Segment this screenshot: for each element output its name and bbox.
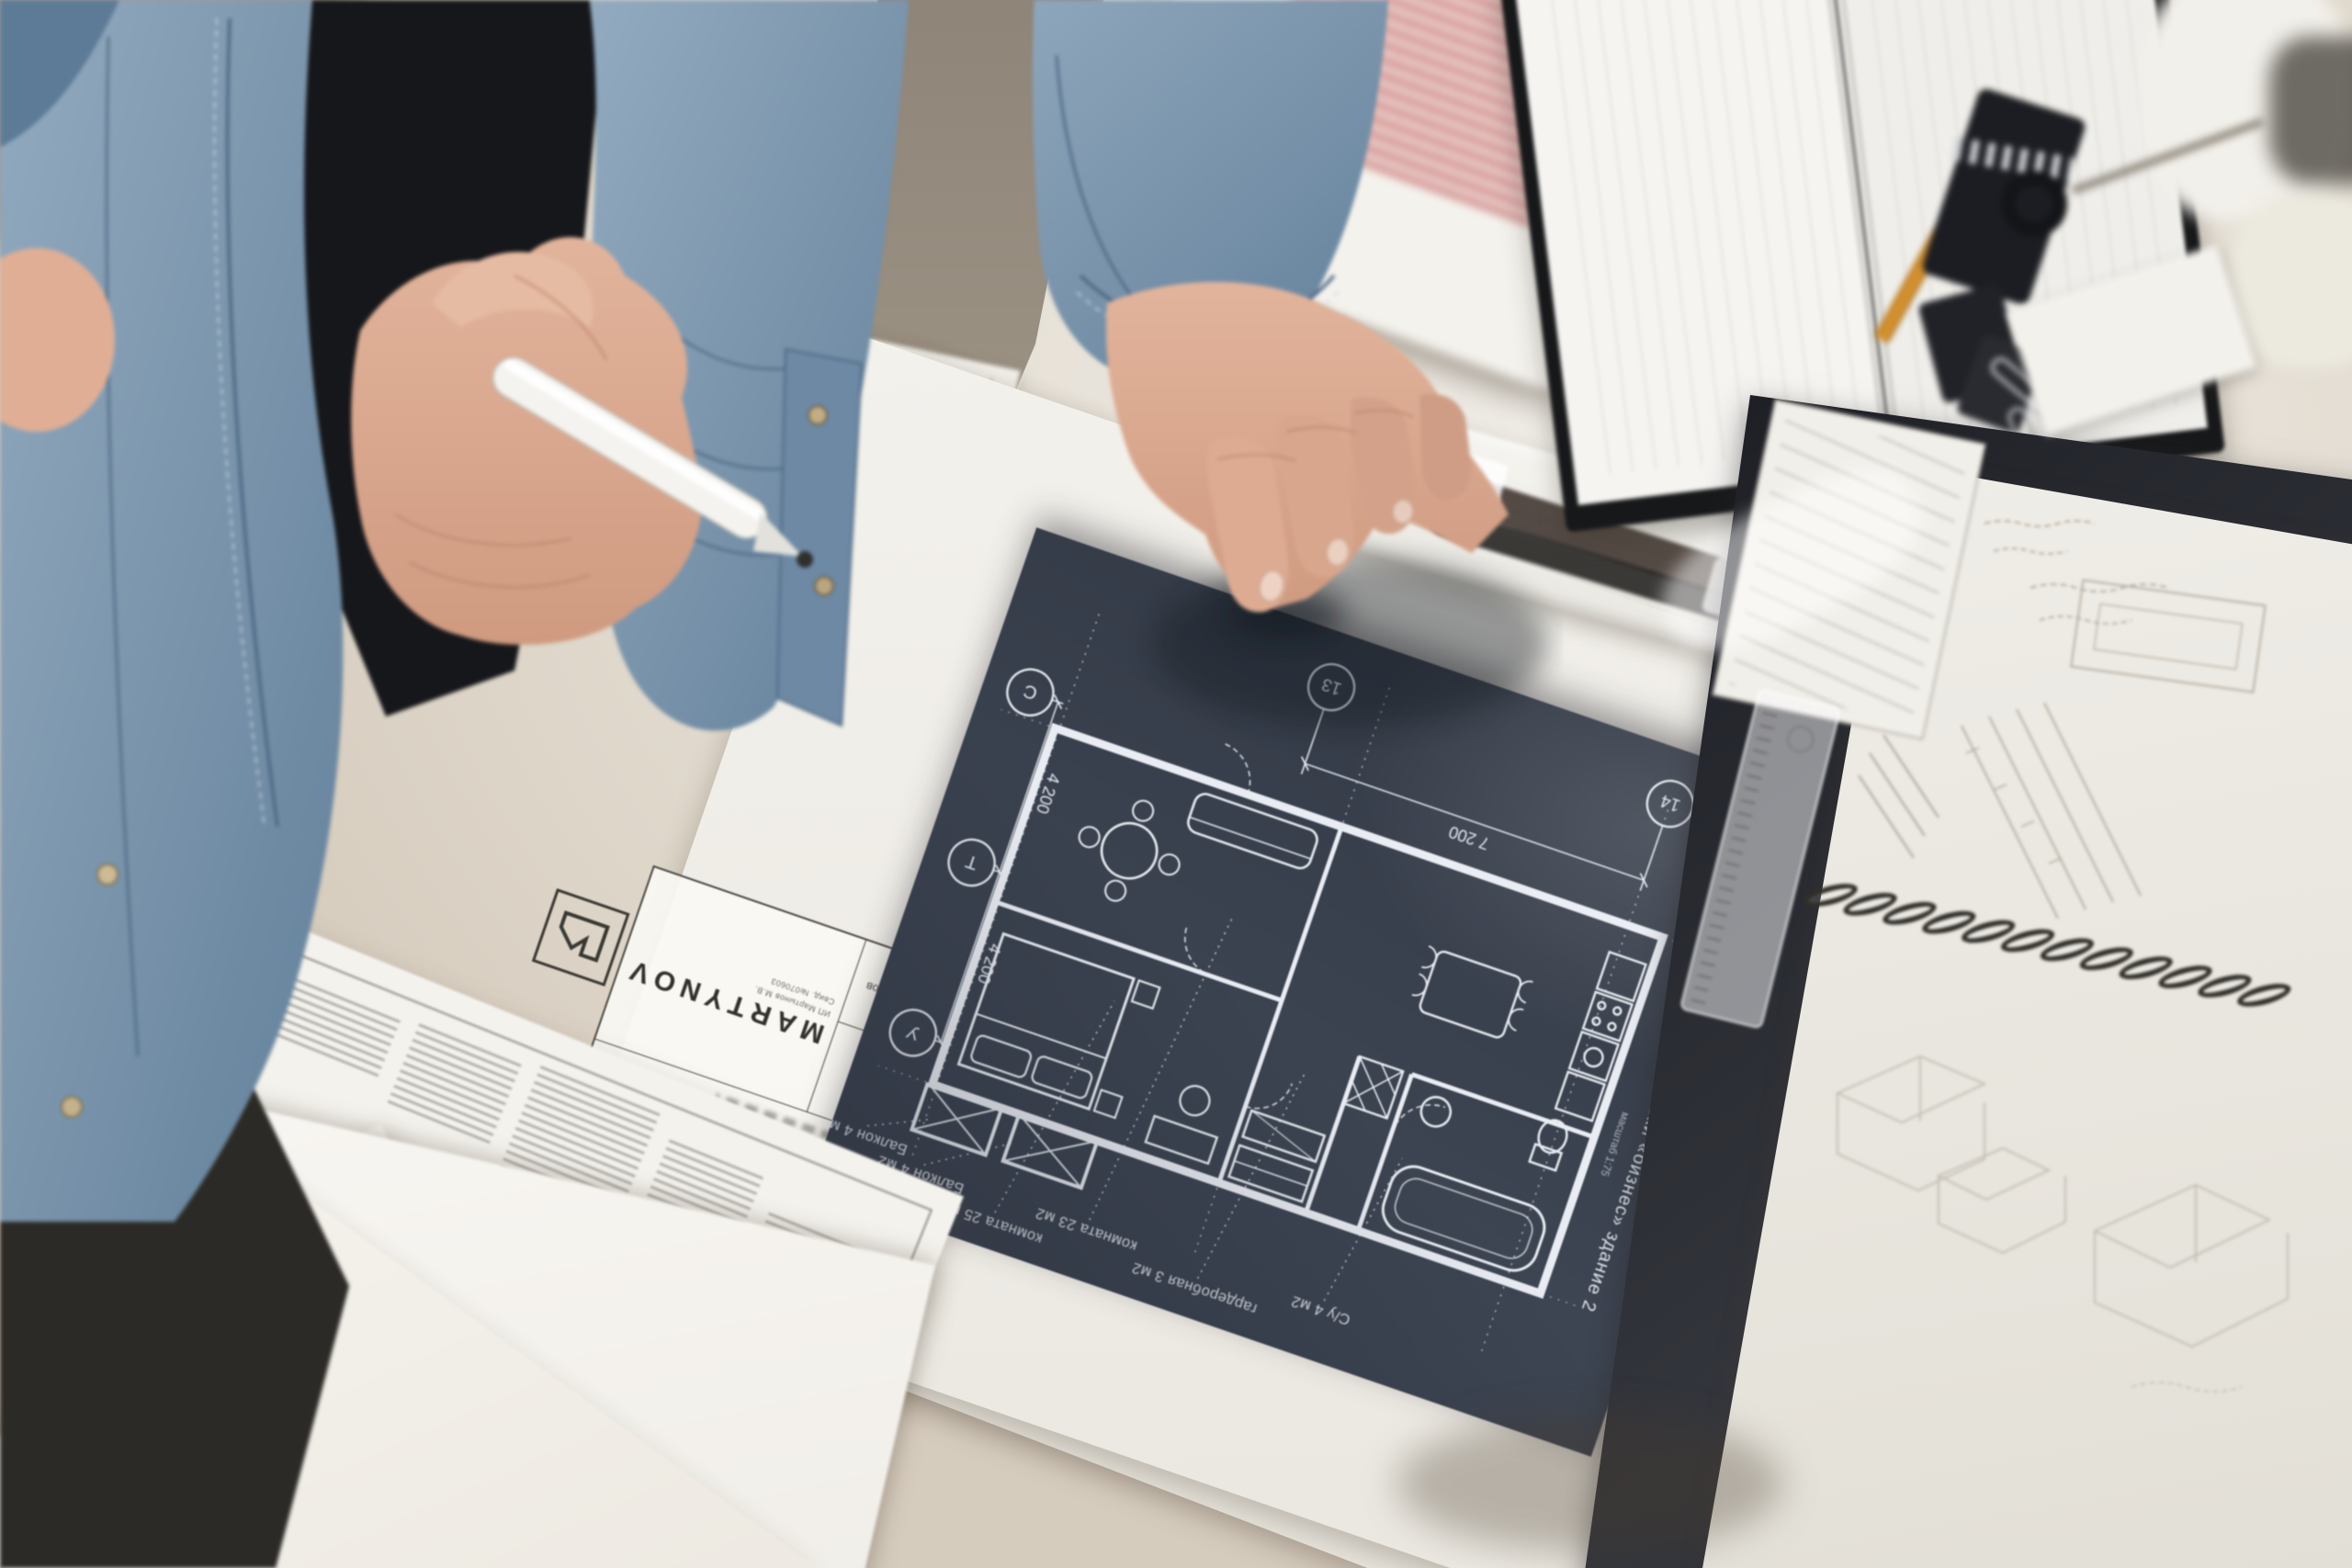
hand-shadow	[1153, 558, 1548, 728]
pinky-finger	[1419, 394, 1471, 500]
blurred-tool	[2269, 37, 2352, 184]
pen-tip	[797, 551, 813, 568]
denim-jacket-left	[0, 0, 343, 1222]
person	[0, 0, 1562, 1568]
black-ring-loop	[2001, 171, 2067, 237]
architect-desk-photo: С Стадия 08 Лист Листов MARTYNOV ИП Март…	[0, 0, 2352, 1568]
crumpled-paper	[2233, 193, 2352, 367]
ruler-hole	[1784, 723, 1817, 756]
